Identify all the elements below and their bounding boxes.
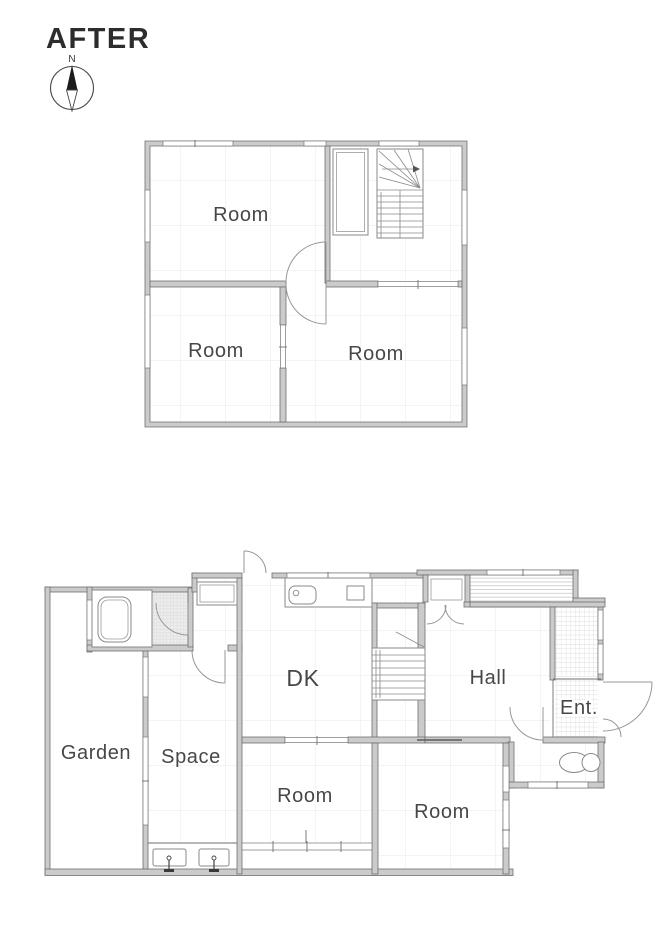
garden-planter-strip (148, 843, 237, 872)
entrance-door-arc (603, 682, 652, 731)
bathtub-icon (98, 597, 131, 642)
room-label-space: Space (161, 746, 221, 768)
room-label-hall: Hall (470, 667, 507, 689)
room-label-entrance: Ent. (560, 697, 598, 719)
first-floor-plan: Garden Space DK Hall Ent. Room Room (45, 551, 652, 876)
floor2-closet (333, 149, 368, 235)
toilet-icon (560, 753, 601, 773)
hall-closet (431, 579, 462, 600)
utility-closet (197, 582, 237, 605)
compass-icon: N (51, 54, 94, 111)
compass-needle-south (67, 90, 78, 111)
compass-north-label: N (68, 54, 75, 65)
kitchen-sink-icon (289, 586, 316, 604)
room-label-dk: DK (286, 665, 319, 691)
page-title: AFTER (46, 23, 150, 55)
stove-icon (347, 586, 364, 600)
entrance-door-arc-small (603, 719, 621, 737)
room-label-2f-3: Room (348, 343, 404, 365)
room-label-2f-1: Room (213, 204, 269, 226)
bathroom (92, 590, 152, 647)
kitchen-counter (285, 578, 372, 607)
compass-needle-north (67, 65, 78, 90)
door-arc (244, 551, 266, 573)
entrance-tile-upper (555, 607, 598, 677)
staircase-upper (377, 149, 423, 238)
room-label-garden: Garden (61, 742, 131, 764)
room-label-1f-room-right: Room (414, 801, 470, 823)
room-label-2f-2: Room (188, 340, 244, 362)
floorplan-canvas: AFTER N (0, 0, 656, 940)
second-floor-plan: Room Room Room (145, 140, 467, 427)
room-label-1f-room-center: Room (277, 785, 333, 807)
washroom-hatch (152, 590, 188, 647)
floorplan-drawing: AFTER N (0, 0, 656, 940)
porch-deck-hatch (470, 575, 573, 602)
